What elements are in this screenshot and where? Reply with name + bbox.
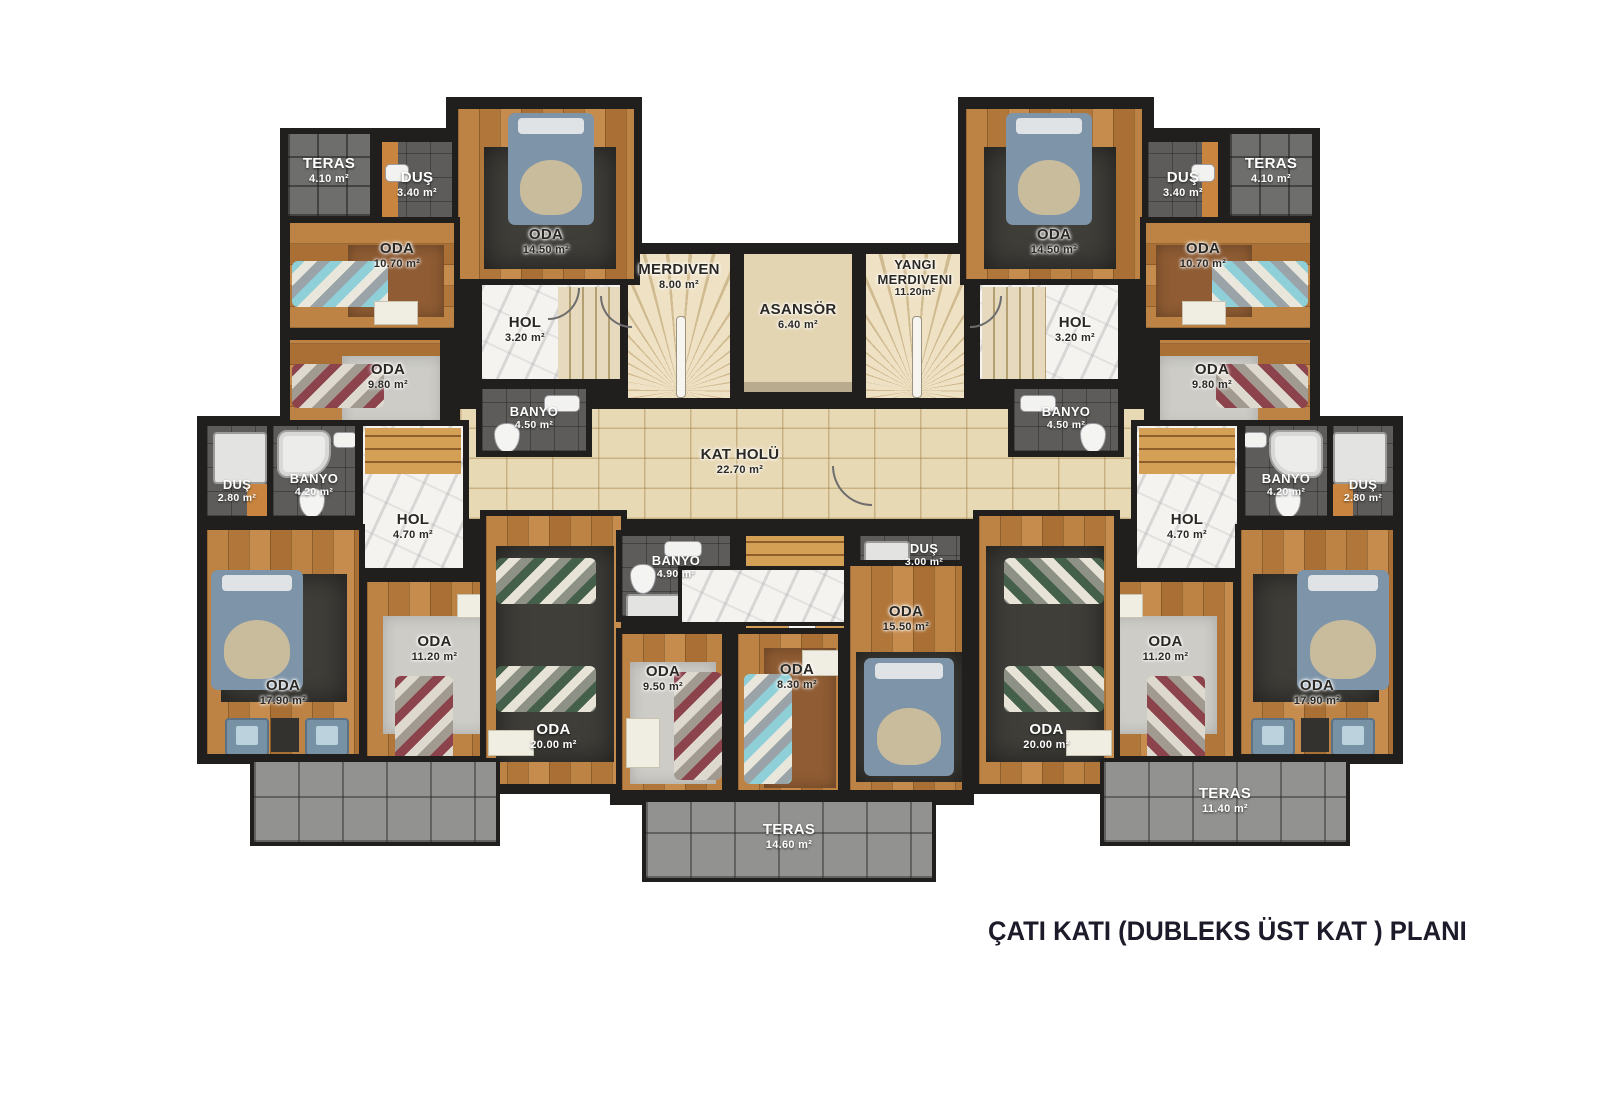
room-label: HOL3.20 m² [476,315,620,344]
room-label: ODA20.00 m² [486,722,621,751]
room-label: ODA14.50 m² [966,227,1142,256]
bed-icon [496,666,596,712]
room-oda-2000-left: ODA20.00 m² [480,510,627,790]
desk-icon [626,718,660,768]
room-oda-1550: ODA15.50 m² [844,560,968,796]
room-label: ODA11.20 m² [1098,634,1233,663]
room-yangi-merdiveni: YANGI MERDIVENI11.20m² [860,248,970,404]
bed-icon [395,676,453,760]
room-banyo-450-left: BANYO4.50 m² [476,383,592,457]
room-label: ODA17.90 m² [1241,678,1393,707]
room-label: TERAS4.10 m² [1230,156,1312,185]
room-label: HOL3.20 m² [1032,315,1118,344]
room-teras-top-right: TERAS4.10 m² [1226,130,1316,220]
room-oda-1450-left: ODA14.50 m² [452,103,640,285]
sofa-icon [305,718,349,756]
sofa-icon [225,718,269,756]
room-label: YANGI MERDIVENI11.20m² [866,258,964,299]
stairs-icon [912,316,922,398]
room-dus-bottom-right: DUŞ2.80 m² [1327,420,1399,522]
room-label: BANYO4.90 m² [622,554,730,580]
room-label: ODA10.70 m² [1140,241,1310,270]
room-oda-830: ODA8.30 m² [732,628,844,796]
room-hol-bottom-right: HOL4.70 m² [1131,420,1243,574]
room-label: DUŞ3.00 m² [888,542,960,568]
room-label: ODA10.70 m² [340,241,454,270]
bed-icon [1147,676,1205,760]
bed-icon [1006,113,1092,225]
bed-icon [1297,570,1389,690]
bed-icon [1004,666,1104,712]
floor-plan: KAT HOLÜ 22.70 m² MERDIVEN8.00 m² ASANSÖ… [0,0,1600,1100]
room-oda-980-left: ODA9.80 m² [284,334,446,434]
room-label: ODA8.30 m² [756,662,838,691]
room-label: ODA9.80 m² [336,362,440,391]
bed-icon [496,558,596,604]
room-label: DUŞ2.80 m² [207,478,267,504]
room-label: DUŞ2.80 m² [1333,478,1393,504]
room-label: HOL4.70 m² [363,512,463,541]
room-merdiven: MERDIVEN8.00 m² [622,248,736,404]
sink-icon [333,432,357,448]
room-oda-1070-left: ODA10.70 m² [284,217,460,334]
room-label: ODA15.50 m² [850,604,962,633]
room-label: BANYO4.50 m² [1014,405,1118,431]
bed-icon [211,570,303,690]
rug [1301,718,1329,752]
room-banyo-420-left: BANYO4.20 m² [267,420,361,522]
room-oda-980-right: ODA9.80 m² [1154,334,1316,434]
stairs-icon [676,316,686,398]
room-label: ODA9.50 m² [616,664,722,693]
room-label: ODA11.20 m² [367,634,502,663]
sofa-icon [1331,718,1375,756]
stairs-icon [365,428,461,474]
room-teras-center: TERAS14.60 m² [642,798,936,882]
room-label: ODA14.50 m² [458,227,634,256]
room-dus-bottom-left: DUŞ2.80 m² [201,420,273,522]
room-oda-1790-right: ODA17.90 m² [1235,524,1399,760]
sink-icon [1243,432,1267,448]
sofa-icon [1251,718,1295,756]
room-banyo-420-right: BANYO4.20 m² [1239,420,1333,522]
room-oda-950: ODA9.50 m² [616,628,728,796]
room-label: TERAS11.40 m² [1104,786,1346,815]
room-hol-bottom-left: HOL4.70 m² [357,420,469,574]
stairs-icon [1139,428,1235,474]
shower-tray-icon [626,594,686,622]
room-label: DUŞ3.40 m² [1148,170,1218,199]
room-label: HOL4.70 m² [1137,512,1237,541]
bed-icon [1004,558,1104,604]
room-label: ODA17.90 m² [207,678,359,707]
room-label: TERAS4.10 m² [288,156,370,185]
bed-icon [864,658,954,776]
room-banyo-450-right: BANYO4.50 m² [1008,383,1124,457]
rug [271,718,299,752]
room-teras-top-left: TERAS4.10 m² [284,130,374,220]
desk-icon [1182,301,1226,325]
room-teras-bottom-right: TERAS11.40 m² [1100,758,1350,846]
room-label: BANYO4.20 m² [273,472,355,498]
room-hol-top-right: HOL3.20 m² [974,279,1124,385]
room-label: KAT HOLÜ 22.70 m² [580,447,900,476]
room-asansor: ASANSÖR6.40 m² [738,248,858,398]
room-oda-1450-right: ODA14.50 m² [960,103,1148,285]
room-label: ODA20.00 m² [979,722,1114,751]
bed-icon [508,113,594,225]
desk-icon [374,301,418,325]
elevator-door [744,382,852,392]
room-label: ODA9.80 m² [1154,362,1310,391]
plan-title: ÇATI KATI (DUBLEKS ÜST KAT ) PLANI [988,916,1406,947]
room-label: BANYO4.20 m² [1245,472,1327,498]
terrace-bottom-left [250,758,500,846]
room-label: ASANSÖR6.40 m² [744,302,852,331]
room-oda-1790-left: ODA17.90 m² [201,524,365,760]
room-label: BANYO4.50 m² [482,405,586,431]
room-label: MERDIVEN8.00 m² [628,262,730,291]
room-oda-1070-right: ODA10.70 m² [1140,217,1316,334]
room-label: TERAS14.60 m² [646,822,932,851]
room-label: DUŞ3.40 m² [382,170,452,199]
